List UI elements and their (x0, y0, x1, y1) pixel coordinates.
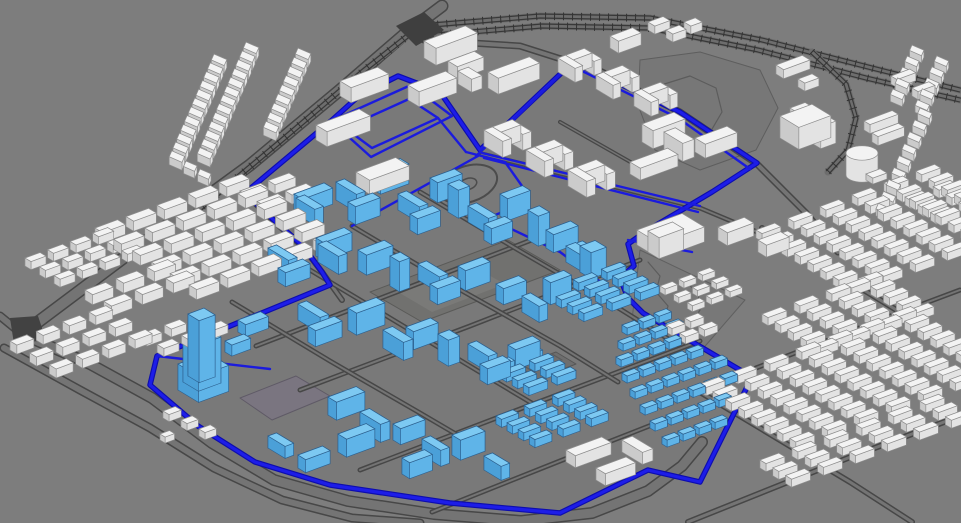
building-white-context (488, 57, 540, 94)
building-white-context (30, 347, 54, 366)
building-white-context (109, 318, 133, 337)
railway-tie (513, 25, 514, 32)
railway-tie (465, 19, 466, 26)
railway-tie (527, 14, 528, 21)
building-white-context (198, 169, 211, 186)
railway-tie (522, 24, 523, 31)
building-white-context (798, 74, 819, 91)
building-white-context (698, 268, 715, 282)
railway-tie (540, 23, 541, 30)
model-canvas (0, 0, 961, 523)
building-white-context (184, 161, 197, 178)
railway-tie (492, 17, 493, 24)
building-white-context (49, 359, 73, 378)
railway-tie (504, 26, 505, 33)
building-blue-highlighted (448, 180, 470, 218)
building-white-context (63, 315, 87, 334)
building-white-context (711, 276, 728, 290)
building-white-context (684, 18, 702, 34)
railway-tie (474, 18, 475, 25)
building-white-context (725, 284, 742, 298)
railway-tie (500, 16, 501, 23)
railway-tie (536, 13, 537, 20)
railway-tie (509, 15, 510, 22)
building-blue-highlighted (438, 330, 460, 366)
building-white-context (82, 327, 106, 346)
railway-tie (495, 26, 496, 33)
railway-tie (487, 27, 488, 34)
building-white-context (89, 306, 113, 325)
railway-tie (447, 20, 448, 27)
building-blue-highlighted (188, 308, 215, 383)
building-blue-highlighted (390, 252, 410, 292)
building-white-context (610, 28, 641, 54)
railway-tie (483, 17, 484, 24)
building-white-context (102, 339, 126, 358)
building-white-context (164, 320, 186, 338)
building-white-context (718, 217, 754, 245)
railway-tie (531, 23, 532, 30)
railway-tie (456, 20, 457, 27)
building-white-context (128, 330, 152, 349)
3d-city-model-viewport[interactable] (0, 0, 961, 523)
railway-tie (518, 14, 519, 21)
